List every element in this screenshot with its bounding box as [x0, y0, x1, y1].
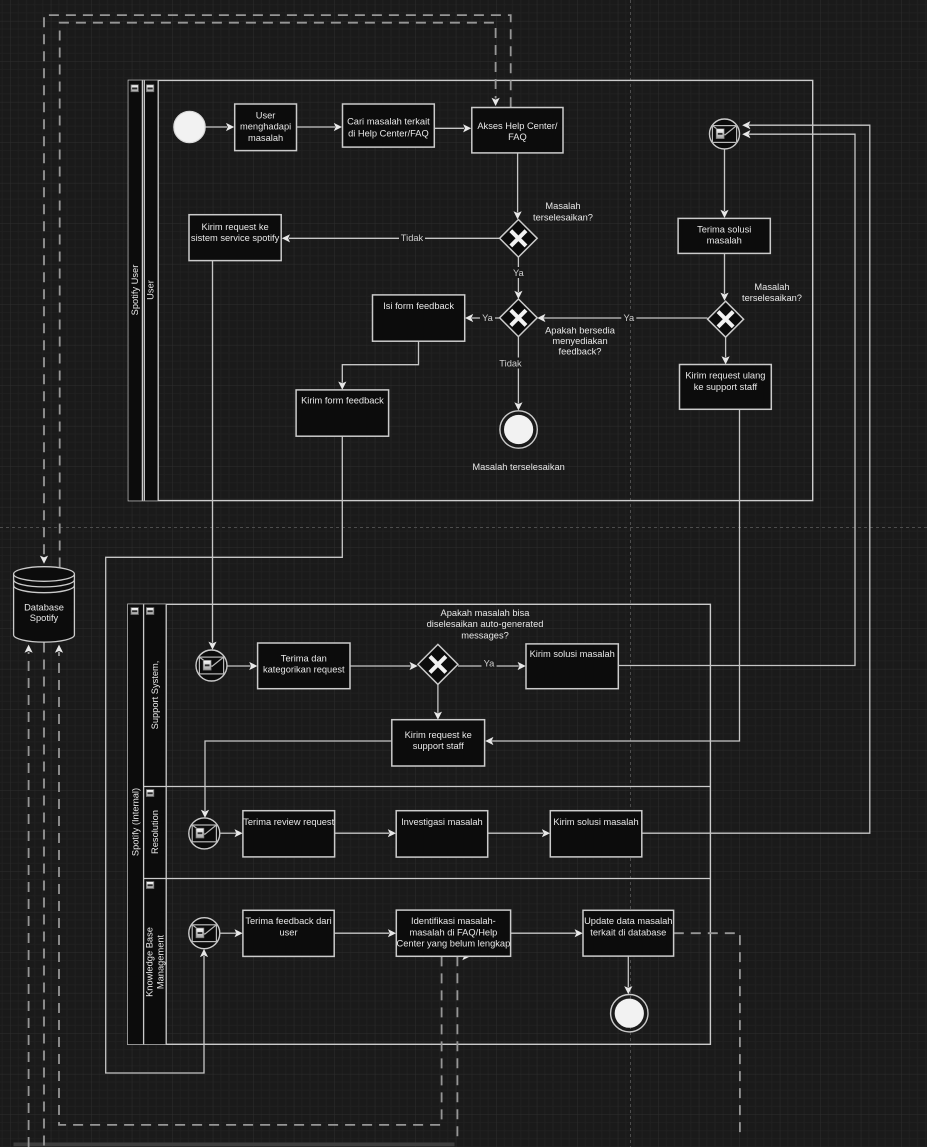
- svg-text:Kirim solusi masalah: Kirim solusi masalah: [553, 817, 638, 827]
- svg-text:Terima review request: Terima review request: [243, 817, 334, 827]
- svg-text:Ya: Ya: [484, 658, 496, 668]
- svg-text:Investigasi masalah: Investigasi masalah: [401, 817, 483, 827]
- svg-text:Ya: Ya: [482, 313, 494, 323]
- svg-text:Spotify User: Spotify User: [130, 265, 140, 316]
- svg-text:Spotify (Internal): Spotify (Internal): [131, 788, 141, 856]
- svg-text:Kirim solusi masalah: Kirim solusi masalah: [530, 649, 615, 659]
- svg-text:DatabaseSpotify: DatabaseSpotify: [24, 602, 64, 623]
- svg-text:Kirim form feedback: Kirim form feedback: [301, 395, 384, 405]
- svg-text:Identifikasi masalah-masalah d: Identifikasi masalah-masalah di FAQ/Help…: [397, 916, 511, 948]
- svg-text:Knowledge Base: Knowledge Base: [144, 927, 154, 997]
- svg-text:Ya: Ya: [513, 268, 525, 278]
- svg-text:Update data masalahterkait di: Update data masalahterkait di database: [584, 916, 672, 937]
- svg-text:Isi form feedback: Isi form feedback: [383, 301, 454, 311]
- svg-text:Resolution: Resolution: [150, 810, 160, 854]
- svg-text:Support System,: Support System,: [150, 661, 160, 730]
- svg-text:Kirim request ulangke support: Kirim request ulangke support staff: [685, 371, 765, 392]
- svg-text:Ya: Ya: [623, 313, 635, 323]
- svg-text:Kirim request kesistem service: Kirim request kesistem service spotify: [191, 222, 280, 243]
- svg-text:Tidak: Tidak: [401, 233, 424, 243]
- svg-text:Tidak: Tidak: [499, 358, 522, 368]
- svg-text:Management: Management: [155, 934, 165, 989]
- svg-text:User: User: [146, 280, 156, 300]
- svg-text:Kirim request kesupport staff: Kirim request kesupport staff: [405, 730, 472, 751]
- svg-text:Masalah terselesaikan: Masalah terselesaikan: [472, 462, 565, 472]
